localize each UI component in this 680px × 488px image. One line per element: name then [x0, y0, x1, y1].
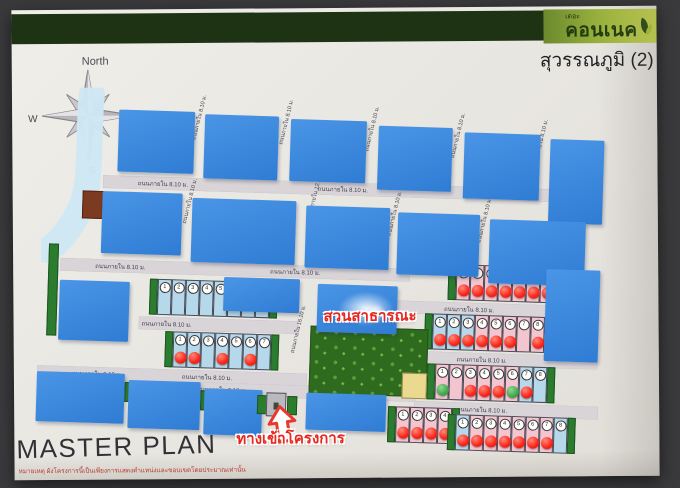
lot-unit: 3: [462, 364, 477, 400]
sold-dot: [478, 385, 490, 397]
lot-number: 6: [507, 369, 518, 380]
plan: ถนนภายใน 8.10 ม.ถนนภายใน 8.10 ม.ถนนภายใน…: [35, 93, 616, 456]
lot-unit: 1: [172, 331, 187, 367]
lot-unit: 1: [157, 279, 172, 315]
lot-number: 7: [520, 369, 531, 380]
sold-dot: [540, 437, 552, 449]
reserved-dot: [436, 384, 448, 396]
covered-block: [396, 212, 480, 277]
sold-dot: [470, 435, 482, 447]
sold-dot: [457, 284, 469, 296]
lot-unit: 7: [256, 334, 271, 370]
lot-number: 2: [471, 418, 482, 429]
pavilion-lot: [401, 373, 427, 400]
sold-dot: [188, 352, 200, 364]
lot-unit: 8: [532, 367, 547, 403]
internal-road: ถนนภายใน 8.10 ม.: [138, 316, 298, 334]
lot-number: 4: [216, 336, 227, 347]
page-shadow: [14, 450, 659, 481]
sold-dot: [448, 334, 460, 346]
sold-dot: [464, 384, 476, 396]
lot-number: 2: [448, 317, 459, 328]
sold-dot: [456, 434, 468, 446]
lot-row: 12345678: [447, 414, 576, 454]
lot-unit: 3: [185, 280, 200, 316]
hedge-cap: [270, 334, 279, 370]
lot-unit: 3: [460, 314, 475, 350]
sold-dot: [216, 353, 228, 365]
lot-number: 5: [490, 318, 501, 329]
lot-unit: 5: [511, 416, 526, 452]
lot-number: 3: [187, 283, 198, 294]
covered-block: [544, 269, 601, 363]
lot-unit: 4: [199, 280, 214, 316]
lot-number: 8: [555, 420, 566, 431]
lot-number: 8: [534, 370, 545, 381]
covered-block: [289, 119, 367, 183]
lot-unit: 3: [423, 407, 438, 443]
lot-unit: 4: [476, 365, 491, 401]
lot-number: 8: [532, 320, 543, 331]
lot-number: 5: [493, 368, 504, 379]
hedge-strip: [46, 243, 59, 335]
lot-unit: 4: [497, 416, 512, 452]
sold-dot: [492, 385, 504, 397]
sold-dot: [244, 354, 256, 366]
road-width-label: ถนนภายใน 8.10 ม.: [141, 318, 192, 330]
lot-unit: 2: [409, 407, 424, 443]
lot-row: 1234567: [164, 331, 279, 371]
lot-number: 4: [476, 318, 487, 329]
lot-unit: 1: [455, 414, 470, 450]
lot-number: 4: [479, 368, 490, 379]
lot-number: 1: [457, 417, 468, 428]
lot-number: 2: [451, 367, 462, 378]
lot-number: 1: [434, 317, 445, 328]
lot-number: 7: [518, 319, 529, 330]
road-width-label: ถนนภายใน 8.10 ม.: [138, 178, 189, 190]
lot-number: 5: [230, 336, 241, 347]
road-width-label: ถนนภายใน 8.10 ม.: [95, 260, 146, 272]
master-plan-page: เดอะ คอนเนค สุวรรณภูมิ (2) North W E S ถ…: [11, 6, 659, 480]
page-shadow: [596, 6, 659, 476]
lot-unit: 6: [525, 416, 540, 452]
lot-number: 6: [504, 319, 515, 330]
lot-unit: 5: [488, 315, 503, 351]
lot-unit: 5: [490, 365, 505, 401]
sold-dot: [476, 335, 488, 347]
road-width-label: ถนนภายใน 8.10 ม.: [318, 183, 369, 195]
covered-block: [58, 280, 130, 342]
lot-unit: 1: [434, 364, 449, 400]
lot-unit: 3: [200, 332, 215, 368]
sold-dot: [498, 436, 510, 448]
lot-number: 1: [174, 334, 185, 345]
sold-dot: [397, 426, 409, 438]
covered-block: [548, 139, 605, 225]
lot-number: 6: [527, 419, 538, 430]
covered-block: [203, 114, 279, 180]
covered-block: [463, 132, 541, 200]
covered-block: [377, 126, 453, 192]
lot-unit: 8: [530, 317, 545, 353]
sold-dot: [411, 427, 423, 439]
lot-number: 4: [499, 419, 510, 430]
lot-unit: 6: [504, 366, 519, 402]
sold-dot: [531, 337, 543, 349]
lot-number: 7: [258, 337, 269, 348]
photo-background: { "header": { "logo_prefix": "เดอะ", "lo…: [0, 0, 680, 488]
lot-number: 2: [411, 410, 422, 421]
compass-west-label: W: [28, 114, 38, 125]
lot-number: 3: [425, 410, 436, 421]
lot-unit: 2: [469, 415, 484, 451]
lot-unit: 2: [446, 314, 461, 350]
utility-lot: [82, 190, 104, 219]
lot-unit: 4: [214, 333, 229, 369]
sold-dot: [485, 285, 497, 297]
sold-dot: [425, 427, 437, 439]
reserved-dot: [506, 386, 518, 398]
lot-unit: 6: [242, 334, 257, 370]
sold-dot: [513, 286, 525, 298]
entrance-label: ทางเข้าโครงการ: [236, 426, 345, 451]
sold-dot: [499, 286, 511, 298]
sold-dot: [504, 336, 516, 348]
lot-unit: 7: [518, 366, 533, 402]
covered-block: [101, 191, 183, 255]
lot-number: 3: [462, 317, 473, 328]
sold-dot: [484, 435, 496, 447]
sold-dot: [490, 335, 502, 347]
lot-unit: 2: [448, 364, 463, 400]
lot-unit: 6: [502, 316, 517, 352]
lot-unit: 4: [474, 315, 489, 351]
hedge-cap: [567, 418, 576, 454]
lot-unit: 5: [228, 333, 243, 369]
lot-number: 5: [513, 419, 524, 430]
lot-number: 2: [173, 282, 184, 293]
park-label: สวนสาธารณะ: [323, 303, 416, 328]
sold-dot: [526, 436, 538, 448]
lot-unit: 3: [483, 415, 498, 451]
sold-dot: [527, 286, 539, 298]
lot-number: 7: [541, 420, 552, 431]
sold-dot: [471, 285, 483, 297]
lot-unit: 1: [395, 406, 410, 442]
lot-number: 3: [465, 368, 476, 379]
lot-number: 1: [437, 367, 448, 378]
covered-block: [304, 205, 390, 270]
lot-unit: 7: [539, 417, 554, 453]
sold-dot: [462, 334, 474, 346]
lot-number: 1: [159, 282, 170, 293]
lot-number: 2: [188, 335, 199, 346]
covered-block: [117, 110, 195, 174]
lot-number: 3: [485, 418, 496, 429]
covered-block: [223, 277, 300, 313]
covered-block: [191, 198, 297, 265]
sold-dot: [520, 386, 532, 398]
compass-north-label: North: [82, 56, 109, 68]
sold-dot: [174, 351, 186, 363]
lot-unit: 2: [171, 279, 186, 315]
sold-dot: [434, 334, 446, 346]
lot-number: 6: [244, 337, 255, 348]
lot-number: 1: [397, 409, 408, 420]
hedge-cap: [546, 367, 555, 403]
lot-unit: 8: [553, 417, 568, 453]
lot-unit: 1: [432, 313, 447, 349]
lot-unit: 2: [186, 332, 201, 368]
covered-block: [35, 371, 125, 424]
lot-row: 12345678: [426, 363, 555, 403]
covered-block: [127, 380, 200, 430]
lot-number: 4: [201, 283, 212, 294]
lot-unit: 7: [516, 316, 531, 352]
sold-dot: [512, 436, 524, 448]
lot-number: 3: [202, 335, 213, 346]
